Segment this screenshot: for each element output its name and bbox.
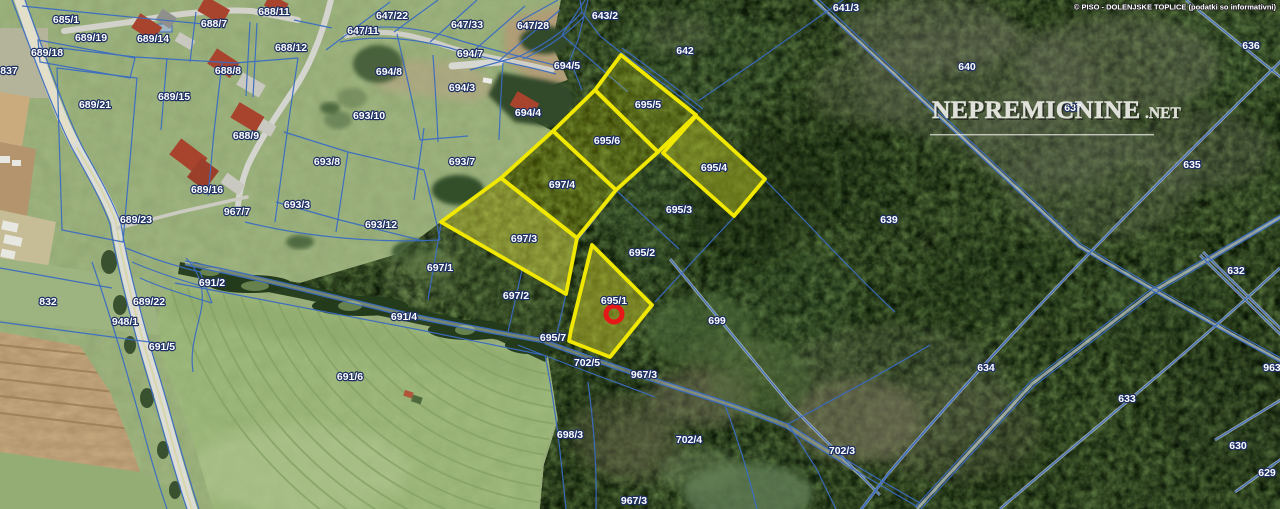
svg-text:688/12: 688/12 xyxy=(275,42,307,54)
svg-text:694/5: 694/5 xyxy=(554,60,580,72)
svg-text:695/2: 695/2 xyxy=(629,247,655,259)
svg-text:695/4: 695/4 xyxy=(701,162,727,174)
svg-text:695/6: 695/6 xyxy=(594,135,620,147)
svg-text:832: 832 xyxy=(39,296,57,308)
svg-text:.NET: .NET xyxy=(1145,105,1181,122)
svg-text:695/5: 695/5 xyxy=(635,99,661,111)
svg-text:632: 632 xyxy=(1227,265,1245,277)
svg-text:697/2: 697/2 xyxy=(503,290,529,302)
svg-text:695/1: 695/1 xyxy=(601,295,627,307)
svg-text:688/11: 688/11 xyxy=(258,6,290,18)
svg-text:633: 633 xyxy=(1118,393,1136,405)
svg-text:697/3: 697/3 xyxy=(511,233,537,245)
svg-text:688/9: 688/9 xyxy=(233,130,259,142)
svg-text:698/3: 698/3 xyxy=(557,429,583,441)
svg-text:697/1: 697/1 xyxy=(427,262,453,274)
svg-text:641/3: 641/3 xyxy=(833,2,859,14)
svg-text:689/21: 689/21 xyxy=(79,99,111,111)
svg-text:691/5: 691/5 xyxy=(149,341,175,353)
svg-text:NEPREMICNINE: NEPREMICNINE xyxy=(932,95,1141,124)
svg-text:693/7: 693/7 xyxy=(449,156,475,168)
svg-text:963: 963 xyxy=(1263,362,1280,374)
svg-text:688/7: 688/7 xyxy=(201,18,227,30)
svg-text:695/3: 695/3 xyxy=(666,204,692,216)
svg-text:693/8: 693/8 xyxy=(314,156,340,168)
svg-text:702/3: 702/3 xyxy=(829,445,855,457)
svg-text:697/4: 697/4 xyxy=(549,179,575,191)
svg-text:693/10: 693/10 xyxy=(353,110,385,122)
svg-text:635: 635 xyxy=(1183,159,1201,171)
svg-text:702/5: 702/5 xyxy=(574,357,600,369)
svg-text:647/33: 647/33 xyxy=(451,19,483,31)
svg-text:647/22: 647/22 xyxy=(376,10,408,22)
svg-text:967/7: 967/7 xyxy=(224,206,250,218)
svg-text:694/8: 694/8 xyxy=(376,66,402,78)
svg-text:691/2: 691/2 xyxy=(199,277,225,289)
svg-text:837: 837 xyxy=(0,65,18,77)
svg-text:695/7: 695/7 xyxy=(540,332,566,344)
svg-text:694/4: 694/4 xyxy=(515,107,541,119)
svg-text:702/4: 702/4 xyxy=(676,434,702,446)
svg-text:640: 640 xyxy=(958,61,976,73)
svg-text:688/8: 688/8 xyxy=(215,65,241,77)
svg-text:639: 639 xyxy=(880,214,898,226)
svg-text:691/4: 691/4 xyxy=(391,311,417,323)
svg-text:967/3: 967/3 xyxy=(621,495,647,507)
svg-text:636: 636 xyxy=(1242,40,1260,52)
svg-text:699: 699 xyxy=(708,315,726,327)
svg-text:629: 629 xyxy=(1258,467,1276,479)
svg-text:685/1: 685/1 xyxy=(53,14,79,26)
svg-text:647/11: 647/11 xyxy=(347,25,379,37)
svg-text:689/16: 689/16 xyxy=(191,184,223,196)
svg-text:647/28: 647/28 xyxy=(517,20,549,32)
svg-text:© PISO - DOLENJSKE TOPLICE (p: © PISO - DOLENJSKE TOPLICE (podatki so i… xyxy=(1074,3,1277,12)
svg-text:634: 634 xyxy=(977,362,995,374)
svg-text:689/15: 689/15 xyxy=(158,91,190,103)
svg-text:691/6: 691/6 xyxy=(337,371,363,383)
svg-text:694/3: 694/3 xyxy=(449,82,475,94)
svg-text:642: 642 xyxy=(676,45,694,57)
svg-text:689/22: 689/22 xyxy=(133,296,165,308)
svg-text:948/1: 948/1 xyxy=(112,316,138,328)
svg-text:643/2: 643/2 xyxy=(592,10,618,22)
svg-text:689/19: 689/19 xyxy=(75,32,107,44)
svg-text:693/3: 693/3 xyxy=(284,199,310,211)
svg-text:689/23: 689/23 xyxy=(120,214,152,226)
svg-text:967/3: 967/3 xyxy=(631,369,657,381)
svg-text:694/7: 694/7 xyxy=(457,48,483,60)
svg-text:693/12: 693/12 xyxy=(365,219,397,231)
svg-text:689/14: 689/14 xyxy=(137,33,169,45)
svg-text:630: 630 xyxy=(1229,440,1247,452)
svg-text:689/18: 689/18 xyxy=(31,47,63,59)
